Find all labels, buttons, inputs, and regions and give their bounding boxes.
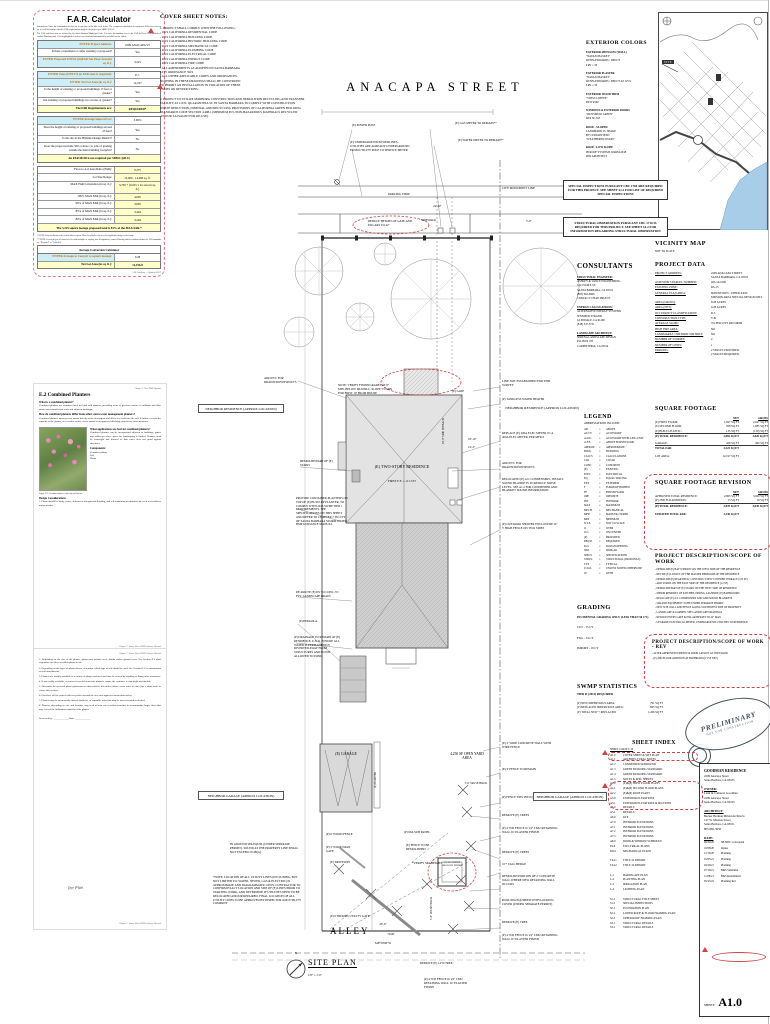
far-row-value: 2209 ANACAPA ST <box>115 41 160 48</box>
site-plan-scale: 1/8" = 1'-0" <box>308 974 338 978</box>
plan-label-driveway: (E) DRIVEWAY <box>330 861 360 865</box>
sheet-index-title: SHEET INDEX <box>610 740 698 746</box>
site-plan-title: SITE PLAN <box>308 958 357 968</box>
plan-label-fence-demo: (E) FENCE TO BE DEMOLISHED <box>406 844 444 852</box>
far-note-1: * NOTE: Projects that meet the criteria … <box>37 235 161 238</box>
plan-label-spa-setback: 5'-0" SPA SETBACK <box>462 782 490 785</box>
project-data-rows: PROJECT ADDRESS:2209 ANACAPA STREET SANT… <box>655 272 768 357</box>
plan-label-monument: CITY MONUMENT LINE <box>502 187 550 191</box>
far-row-value: 12,196.8 <box>115 262 160 269</box>
vicinity-map-title: VICINITY MAP <box>655 240 706 247</box>
scope-of-work-panel: PROJECT DESCRIPTION/SCOPE OF WORK DEMOLI… <box>655 553 768 626</box>
page-title: E.2 Combined Planters <box>39 392 161 398</box>
special-inspections-box: SPECIAL INSPECTIONS PURSUANT CBC 1704 AR… <box>563 180 668 200</box>
far-row-value: 4,005 <box>115 194 160 201</box>
figure-caption: Figure E.2: Combined planter with trim a… <box>39 493 161 495</box>
plan-dim-14: 14'-2" <box>468 446 488 450</box>
alley-label: ALLEY <box>330 926 370 936</box>
plan-label-residence: (E) TWO-STORY RESIDENCE <box>362 464 442 469</box>
plan-label-planter-vertical: (E) PLANTER <box>374 748 377 788</box>
revision-triangle-icon <box>602 750 608 755</box>
plan-label-remove-tree-14: REMOVE (E) 14"Ø TREE <box>420 962 464 966</box>
planter-photo <box>39 427 87 491</box>
plan-label-spa-setback-vertical: 5'-0" SPA SETBACK <box>430 876 433 920</box>
plan-label-verify-grades: NOTE: VERIFY FINISH GRADES AT 8" MIN. BE… <box>338 384 396 395</box>
question-heading: How do combined planters differ from oth… <box>39 413 161 416</box>
far-row-label: ENTER Acreage to Convert to square foota… <box>38 254 115 261</box>
far-row-value: 0.28 <box>115 254 160 261</box>
plan-label-line-not-established: LINE NOT ESTABLISHED FOR THIS SURVEY <box>502 380 554 388</box>
plan-label-conc-wall-wire: (E) 2' WIDE CONCRETE WALL WITH WIRE FENC… <box>502 742 558 750</box>
bmp-manual-page-1: Chapter 7: New BMP Options E.2 Combined … <box>33 383 167 653</box>
sheet-count: SHEET COUNT: 34 <box>610 748 698 752</box>
far-row-value: 3,225 <box>115 57 160 67</box>
grading-subtitle: INCIDENTAL GRADING ONLY (LESS THAN 50 CY… <box>577 615 657 619</box>
plan-label-sidewalk: SIDEWALK <box>421 219 447 223</box>
plan-label-pergola: (P) PERGOLA <box>299 620 331 624</box>
plan-label-drainage: (P) DRAINAGE TO REMAIN AT (E) RESIDENCE,… <box>294 636 344 659</box>
plan-label-tankless: (P) TANKLESS WATER HEATER <box>502 398 558 402</box>
far-row-label: The FAR Requirements are: <box>38 106 115 113</box>
square-footage-revision-panel: SQUARE FOOTAGE REVISION NETGROSS APPROVE… <box>655 480 768 516</box>
far-row-label: ENTER Net Lot Area (in sq. ft.): <box>38 79 115 86</box>
far-intro-1: Instructions: Enter the information for … <box>37 26 161 32</box>
plan-dim-18: 18'-10" <box>468 438 488 442</box>
legend-title: LEGEND <box>584 414 662 420</box>
plan-sheet: F.A.R. Calculator Instructions: Enter th… <box>0 0 770 1024</box>
paragraph: 1. Plants should be hardy, native, toler… <box>39 500 161 507</box>
plan-label-add-pvc-left: ADD PVC FOR DRAINS/DOWNSPOUTS <box>264 377 306 385</box>
far-row-label: ENTER Average Slope of Lot: <box>38 117 115 124</box>
plan-label-pool-cover: POOL/SPA EQUIPPED WITH LOCKING COVER (UN… <box>502 899 558 907</box>
plan-label-residence-ff: FIRST F.F. = 111.74'± <box>362 479 442 483</box>
plan-dim-5: 5'-0" <box>526 220 540 224</box>
legend-panel: LEGEND ABBREVIATIONS INCLUDE: AB=ABOVE A… <box>584 414 662 576</box>
far-row-label: 90% of MAX FAR (in sq. ft.): <box>38 201 115 208</box>
date-list: 09/30/20SB DRC Conceptual10/08/20Intake1… <box>704 840 770 885</box>
square-footage-title: SQUARE FOOTAGE <box>655 406 768 412</box>
far-row-value: 12,000 - 14,999 sq. ft. <box>115 174 160 181</box>
swmp-title: SWMP STATISTICS <box>577 684 663 690</box>
plan-label-hidden-gate: (P) 6' HIDDEN UTILITY GATE <box>330 915 370 919</box>
far-table-1: ENTER Project Address:2209 ANACAPA ST Is… <box>37 40 161 67</box>
plan-bearing: S48°59'00"W <box>362 942 404 946</box>
far-row-label: Is there a basement or cellar existing o… <box>38 49 115 56</box>
far-row-label: Are existing or proposed buildings two s… <box>38 98 115 105</box>
far-row-label: Does the height of existing or proposed … <box>38 125 115 135</box>
plan-label-water-meter: (E) WATER METER TO REMAIN** <box>458 139 522 143</box>
far-row-label: Is the site in the Hillside Design Distr… <box>38 136 115 143</box>
plan-label-remove-tree-3: REMOVE (E) TREE <box>502 921 542 925</box>
far-title: F.A.R. Calculator <box>37 15 161 24</box>
paragraph: Combined planters are container-lined be… <box>39 404 161 411</box>
far-intro-2: The FAR and floor area are defined by th… <box>37 33 161 39</box>
far-row-value: No <box>115 136 160 143</box>
plan-label-wd-fence-3: (P) 4' WD FENCE O/ 24" CMU RETAINING WAL… <box>424 978 476 989</box>
plan-label-neighbor-garage-left: NEIGHBOR GARAGE (APPROX LOCATION) <box>198 791 284 800</box>
plan-label-side-setback: 10'-0" SIDE SETBACK <box>442 398 445 444</box>
far-row-label: ENTER Project Address: <box>38 41 115 48</box>
plan-label-fence-remain: (E) 6' FENCE TO REMAIN <box>502 768 552 772</box>
cover-sheet-notes: COVER SHEET NOTES: 1. PROJECT SHALL COMP… <box>160 14 306 119</box>
sheet-index-panel: SHEET INDEX SHEET COUNT: 34 A1.0COVER SH… <box>610 740 698 931</box>
cover-note-1: 1. PROJECT SHALL COMPLY WITH THE FOLLOWI… <box>160 26 306 92</box>
plan-label-relocate-ac: RELOCATED (E) A/C CONDENSERS. INSTALL SO… <box>502 478 564 493</box>
plan-label-sub-panel: (P) 60A SUB PANEL <box>404 831 442 835</box>
plan-label-utility-note: *NOTE: LOCATION OF ALL UTILITY LINES (IN… <box>213 876 301 906</box>
bmp-manual-page-2: Chapter 7: Storm Water BMP Guidance Manu… <box>33 648 167 930</box>
plan-label-neighbor-residence-right: NEIGHBOR RESIDENCE (APPROX LOCATION) <box>505 406 579 410</box>
plan-label-power-pole: (E) POWER POLE <box>352 124 400 128</box>
square-footage-revision-title: SQUARE FOOTAGE REVISION <box>655 480 768 486</box>
north-label: N <box>291 952 301 956</box>
consultants-title: CONSULTANTS <box>577 262 657 270</box>
numbered-list: 1. Depending on the size of the planter,… <box>39 658 161 711</box>
scope-rev-title: PROJECT DESCRIPTION/SCOPE OF WORK - REV <box>652 640 764 650</box>
page-footer: Chapter 7: Storm Water BMP Guidance Manu… <box>119 923 161 925</box>
far-summary-row: An FAR MOD is not required per SBMC §28.… <box>38 155 160 162</box>
plan-label-garage: (E) GARAGE <box>324 752 368 757</box>
far-avg-table: ENTER Acreage to Convert to square foota… <box>37 253 161 269</box>
plan-label-wd-fence-1: (P) 4' WD FENCE O/ 24" CMU RETAINING WAL… <box>502 827 560 835</box>
far-row-value: 12,197 <box>115 79 160 86</box>
owner-heading: OWNER: <box>704 787 770 791</box>
legend-list: AB=ABOVE ACC'Y=ACCESSORY A.D.U.=ACCESSOR… <box>584 428 662 577</box>
plan-label-underground: (E) UNDERGROUND POWERLINES - UTILITIES A… <box>350 141 410 152</box>
far-calculator-panel: F.A.R. Calculator Instructions: Enter th… <box>33 10 165 277</box>
revision-triangle-icon <box>702 947 708 952</box>
plan-label-man-gate: (P) 3' WOOD MAN GATE <box>326 846 356 854</box>
plan-label-demolish-stairs: DEMOLISH PART OF (E) STAIRS <box>300 460 340 468</box>
structural-observation-box: STRUCTURAL OBSERVATION PURSUANT CBC 1710… <box>563 217 668 237</box>
grading-title: GRADING <box>577 604 657 611</box>
far-row-label: ENTER Zone (ONLY if an FAR zone is requi… <box>38 72 115 79</box>
far-footer: FAR Calculator — Updated 4/2017 <box>37 272 161 274</box>
plan-label-remove-trees-2: REMOVE (E) TREES <box>502 851 542 855</box>
square-footage-rows: (E) FIRST FLOOR:1,827 SQ FT2,027 SQ FT(E… <box>655 420 768 433</box>
far-table-2: ENTER Zone (ONLY if an FAR zone is requi… <box>37 71 161 113</box>
revision-triangle-icon <box>148 28 154 33</box>
revision-rows: APPROVED TOTAL RESIDENCE:2,865 SQ FT3,02… <box>655 494 768 502</box>
far-row-label: Lot Size Range: <box>38 174 115 181</box>
plan-label-neighbor-residence-left: NEIGHBOR RESIDENCE (APPROX LOCATION) <box>198 404 284 413</box>
plan-label-tall-hedge: 10'+ TALL HEDGE <box>502 863 542 867</box>
scope-of-work-rev-panel: PROJECT DESCRIPTION/SCOPE OF WORK - REV … <box>652 640 764 662</box>
street-name: ANACAPA STREET <box>320 80 550 95</box>
far-row-value: 0.275 <box>115 167 160 174</box>
plan-label-parking-strip: PARKING STRIP <box>388 193 410 197</box>
square-footage-panel: SQUARE FOOTAGE NETGROSS (E) FIRST FLOOR:… <box>655 406 768 459</box>
far-row-value: 3,204 <box>115 216 160 223</box>
grading-panel: GRADING INCIDENTAL GRADING ONLY (LESS TH… <box>577 604 657 650</box>
plan-label-reroute: RE-ROUTE (E) DS TO CONC. W/ PVC LANDSCAP… <box>296 591 342 599</box>
plan-label-container-planters: PROVIDE CONTAINER PLANTERS ON TOP OF (E)… <box>296 497 348 527</box>
far-row-label: Does the project include 500 or more cu.… <box>38 143 115 153</box>
far-row-label: ENTER Proposed TOTAL (in)FAR Net Floor A… <box>38 57 115 67</box>
plan-dim-20: 20'-0" <box>372 923 394 927</box>
far-row-label: 85% of MAX FAR (in sq. ft.): <box>38 209 115 216</box>
far-row-value: 3,700 + (0.025 x lot area in sq. ft.) <box>115 182 160 193</box>
far-summary-row: The 3,225 square footage proposed total … <box>38 224 160 231</box>
paragraph: Combined planters intercept roof runoff … <box>39 417 161 424</box>
exterior-colors-panel: EXTERIOR COLORS EXTERIOR SHINGLES (WALL)… <box>586 40 656 159</box>
page-header: Chapter 7: Storm Water BMP Guidance Manu… <box>39 653 161 655</box>
far-row-value: Yes <box>115 125 160 135</box>
vicinity-map-drawing <box>658 12 768 230</box>
plan-label-outdoor-shower: (P) OUTDOOR SHOWER ENCLOSURE W/ 5' HIGH … <box>502 523 558 531</box>
plan-label-wood-fence: (P) 6' WOOD FENCE <box>326 833 360 837</box>
swmp-subtitle: TIER II (2013) REQUIRED <box>577 692 663 696</box>
legend-subtitle: ABBREVIATIONS INCLUDE: <box>584 422 662 426</box>
far-row-label: Floor-to-Lot Area Ratio (FAR): <box>38 167 115 174</box>
revision-triangle-icon <box>602 783 608 788</box>
vicinity-map: SITE <box>658 12 768 230</box>
plan-label-neighbor-garage-right: NEIGHBOR GARAGE (APPROX LOCATION) <box>533 792 607 801</box>
consultants-panel: CONSULTANTS STRUCTURAL ENGINEER: ASHLEY … <box>577 262 657 349</box>
far-row-value: No <box>115 143 160 153</box>
swmp-panel: SWMP STATISTICS TIER II (2013) REQUIRED … <box>577 684 663 715</box>
far-row-value: E-1 <box>115 72 160 79</box>
far-row-value: 3.09% <box>115 117 160 124</box>
date-heading: DATE: <box>704 836 770 840</box>
plan-label-open-yard: 4,250 SF OPEN YARD AREA <box>446 752 488 761</box>
plan-label-gate: (E) GATE <box>452 390 472 394</box>
far-row-label: Is the height of existing or proposed bu… <box>38 87 115 97</box>
sheet-index-list: A1.0COVER SHEET & SITE PLANA1.1ARCHITECT… <box>610 754 698 931</box>
page-header: Chapter 7: New BMP Options <box>39 388 161 390</box>
review-line: Reviewed by: ____________ Date: ________… <box>39 717 161 720</box>
plan-label-demo-wall: DEMOLISH PORTION OF 2' CONCRETE WALL WHE… <box>502 875 560 886</box>
far-note-2: ** NOTE: If your project is located on a… <box>37 239 161 244</box>
plan-label-spa: (P) SPA UNDER SEPARATE PERMIT <box>439 861 465 867</box>
plan-label-spa-equip-note: IN GROUND SPA EQUIP. (UNDER SEPARATE PER… <box>230 843 300 854</box>
far-avg-title: Average Conversion Calculator <box>37 245 161 253</box>
scope-items: DEMOLISH (E) BAY WINDOW ON THE WEST SIDE… <box>655 568 768 626</box>
plan-label-verify-spa: *VERIFY SPA HEIGHT <box>412 862 442 866</box>
plan-label-gas-meter: (E) GAS METER TO REMAIN** <box>455 122 517 126</box>
title-block: GOODMAN RESIDENCE 2209 Anacapa StreetSan… <box>699 763 770 1017</box>
architect-heading: ARCHITECT: <box>704 809 770 813</box>
cover-note-2: 2. PROJECT TO UTILIZE MARBORG CONSTRUCTI… <box>160 97 306 119</box>
far-row-label: 80% of MAX FAR (in sq. ft.): <box>38 216 115 223</box>
far-row-label: MAX FAR Calculation (in sq. ft.): <box>38 182 115 193</box>
question-heading: What is a combined planter? <box>39 401 161 404</box>
plan-dim-70: 70.00' <box>378 933 404 937</box>
far-row-value: Yes <box>115 49 160 56</box>
far-row-value: 3,605 <box>115 201 160 208</box>
far-row-label: Net Lot Area (in sq. ft.): <box>38 262 115 269</box>
project-data-title: PROJECT DATA <box>655 262 768 268</box>
scope-rev-items: ALTER APPROVED WINDOW & DOOR LAYOUT AT 2… <box>652 652 764 662</box>
plan-label-replace-meter: REPLACE (E) 200A ELEC METER W/ A 400A EL… <box>502 432 560 440</box>
plan-label-remove-trees-1: REMOVE (E) TREES <box>502 814 542 818</box>
sheet-label: SHEET: <box>704 1003 715 1007</box>
plan-label-gate-height: REDUCE HEIGHT OF GATE AND PILLARS TO 42" <box>368 220 416 228</box>
swmp-rows: (P) NEW IMPERVIOUS AREA:791 SQ FT(P) REP… <box>577 701 663 715</box>
cover-notes-title: COVER SHEET NOTES: <box>160 14 306 20</box>
exterior-colors-title: EXTERIOR COLORS <box>586 40 656 46</box>
project-data-panel: PROJECT DATA PROJECT ADDRESS:2209 ANACAP… <box>655 262 768 358</box>
sheet-number: A1.0 <box>718 995 742 1010</box>
far-row-value: 3,404 <box>115 209 160 216</box>
far-table-4: Floor-to-Lot Area Ratio (FAR):0.275 Lot … <box>37 166 161 232</box>
far-row-value: Yes <box>115 87 160 97</box>
handwritten-note: Per Plan <box>68 885 83 891</box>
vicinity-map-scale: NOT TO SCALE <box>655 250 675 254</box>
site-marker: SITE <box>662 60 674 64</box>
question-heading: Design Considerations <box>39 497 161 500</box>
plan-dim-24: 24'-10" <box>433 205 453 209</box>
scope-title: PROJECT DESCRIPTION/SCOPE OF WORK <box>655 553 768 565</box>
far-row-label: 100% MAX FAR (in sq. ft.): <box>38 194 115 201</box>
project-name: GOODMAN RESIDENCE <box>704 769 770 773</box>
far-table-3: ENTER Average Slope of Lot:3.09% Does th… <box>37 116 161 163</box>
plan-label-wd-fence-2: (P) 4' WD FENCE O/ 24" CMU RETAINING WAL… <box>502 934 560 942</box>
plan-label-add-pvc-right: ADD PVC FOR DRAINS/DOWNSPOUTS <box>502 462 548 470</box>
revision-triangle-icon <box>157 84 163 89</box>
far-row-value: Yes <box>115 98 160 105</box>
far-row-value: REQUIRED* <box>115 106 160 113</box>
